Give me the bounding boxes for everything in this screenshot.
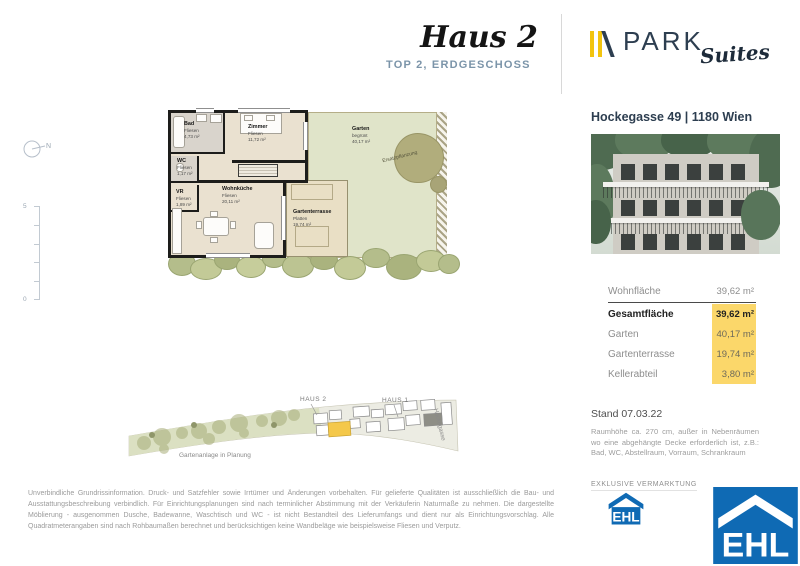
- table-row: Wohnfläche 39,62 m²: [608, 281, 756, 301]
- site-plan: HAUS 2 HAUS 1 Hockegasse Gartenanlage in…: [104, 391, 464, 465]
- chair-symbol: [210, 237, 218, 243]
- chair-symbol: [230, 221, 236, 229]
- window-symbol: [238, 108, 290, 113]
- header-divider: [561, 14, 562, 94]
- compass-north-label: N: [46, 143, 51, 150]
- svg-text:EHL: EHL: [722, 526, 790, 564]
- highlighted-unit: [328, 421, 351, 437]
- park-suites-logo: PARK Suites: [590, 28, 770, 66]
- room-label-wc: WC Fliesen 1,17 m²: [177, 158, 193, 178]
- address-heading: Hockegasse 49 | 1180 Wien: [591, 110, 752, 124]
- window-symbol: [303, 122, 308, 150]
- page-subtitle: TOP 2, ERDGESCHOSS: [386, 59, 531, 71]
- legal-disclaimer: Unverbindliche Grundrissinformation. Dru…: [28, 489, 554, 532]
- terrace-lounge-symbol: [291, 184, 333, 200]
- logo-park-text: PARK: [623, 28, 704, 54]
- room-label-bad: Bad Fliesen 4,73 m²: [184, 121, 200, 141]
- scale-top-label: 5: [23, 203, 27, 210]
- table-row: Gartenterrasse 19,74 m²: [608, 344, 756, 364]
- bedroom-partition-wall: [232, 160, 308, 163]
- scale-bottom-label: 0: [23, 296, 27, 303]
- room-label-gartenterrasse: Gartenterrasse Platten 19,74 m²: [293, 209, 331, 229]
- room-label-zimmer: Zimmer Fliesen 11,72 m²: [248, 124, 267, 144]
- svg-text:EHL: EHL: [612, 509, 639, 524]
- tree-symbol: [430, 176, 447, 193]
- table-row-total: Gesamtfläche 39,62 m²: [608, 304, 756, 324]
- exclusive-marketing-label: EXKLUSIVE VERMARKTUNG: [591, 481, 697, 491]
- sofa-symbol: [254, 222, 274, 249]
- table-row: Garten 40,17 m²: [608, 324, 756, 344]
- window-symbol: [196, 108, 214, 113]
- room-label-garten: Garten begrünt 40,17 m²: [352, 126, 370, 146]
- pillow-symbol: [266, 115, 275, 121]
- floorplan-document: Haus 2 TOP 2, ERDGESCHOSS PARK Suites N …: [0, 0, 800, 566]
- window-symbol: [206, 253, 250, 258]
- logo-bars-icon: [590, 31, 614, 57]
- ehl-logo-small: EHL: [607, 492, 645, 526]
- ceiling-note: Raumhöhe ca. 270 cm, außer in Nebenräume…: [591, 427, 759, 459]
- room-label-wohnkueche: Wohnküche Fliesen 20,11 m²: [222, 186, 252, 206]
- page-title: Haus 2: [414, 20, 544, 55]
- table-row: Kellerabteil 3,80 m²: [608, 364, 756, 384]
- date-stamp: Stand 07.03.22: [591, 408, 662, 420]
- terrace-door-symbol: [281, 196, 286, 240]
- haus2-label: HAUS 2: [300, 396, 326, 403]
- table-divider: [608, 302, 756, 303]
- ehl-logo-large: EHL: [713, 487, 798, 564]
- chair-symbol: [196, 221, 202, 229]
- area-table: Wohnfläche 39,62 m² Gesamtfläche 39,62 m…: [608, 281, 756, 384]
- pillow-symbol: [244, 115, 253, 121]
- kitchen-counter-symbol: [172, 208, 182, 254]
- siteplan-caption: Gartenanlage in Planung: [179, 452, 251, 459]
- north-compass-icon: N: [22, 138, 62, 160]
- chair-symbol: [210, 211, 218, 217]
- wardrobe-symbol: [238, 164, 278, 177]
- logo-suites-text: Suites: [699, 40, 770, 69]
- building-rendering-photo: [591, 134, 780, 254]
- terrace-seating-symbol: [295, 226, 329, 247]
- scale-bar: 5 0: [30, 206, 40, 300]
- dining-table-symbol: [203, 217, 229, 236]
- room-label-vr: VR Fliesen 1,89 m²: [176, 189, 192, 209]
- haus1-label: HAUS 1: [382, 397, 408, 404]
- washer-symbol: [210, 114, 222, 123]
